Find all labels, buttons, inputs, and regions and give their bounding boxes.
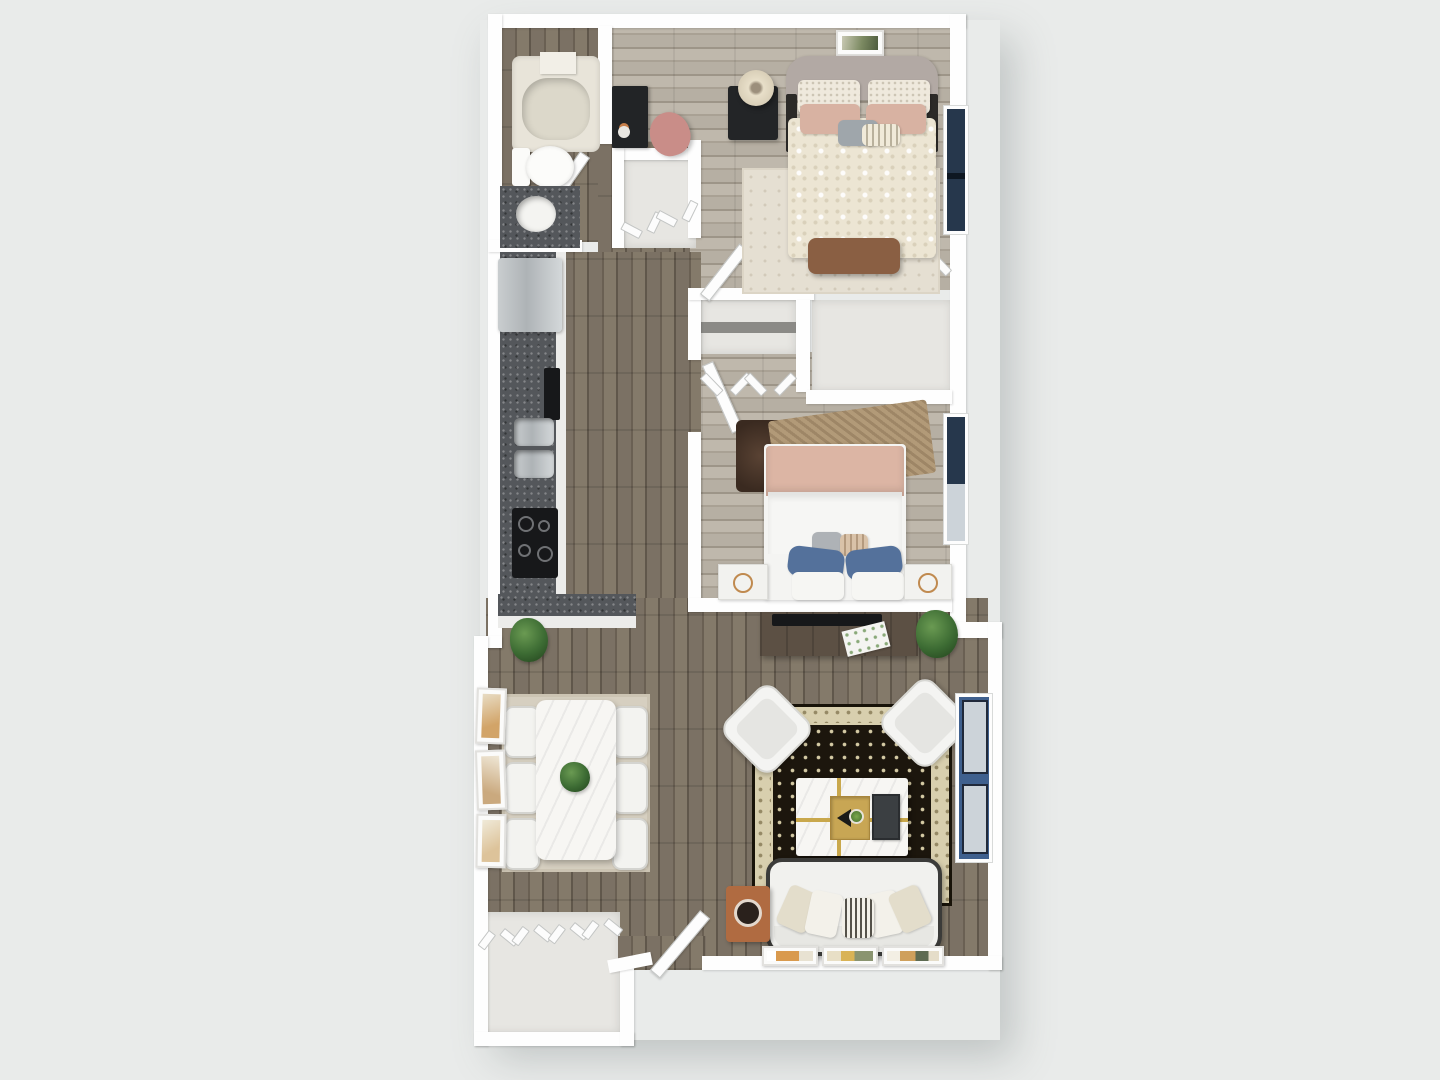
kitchen-sink bbox=[514, 418, 558, 480]
wall-closet-divider bbox=[796, 300, 810, 392]
desk-vase bbox=[618, 126, 630, 138]
gold-tray bbox=[830, 796, 870, 840]
wall-oven bbox=[544, 368, 560, 420]
second-bed-blanket bbox=[766, 446, 904, 496]
pillow-white-left bbox=[792, 572, 844, 600]
dining-chair bbox=[612, 818, 648, 870]
refrigerator bbox=[498, 258, 562, 332]
wall-spine-b bbox=[688, 292, 701, 360]
table-centerpiece-plant bbox=[560, 762, 590, 792]
coffee-table-book bbox=[872, 794, 900, 840]
dining-chair bbox=[504, 818, 540, 870]
pillow-white-right bbox=[852, 572, 904, 600]
floor-plan-canvas bbox=[0, 0, 1440, 1080]
wall-top bbox=[488, 14, 966, 28]
terracotta-side-table bbox=[726, 886, 770, 942]
foot-bench bbox=[808, 238, 900, 274]
wall-print bbox=[882, 946, 944, 966]
dining-corner-plant bbox=[510, 618, 548, 662]
shower-shelf bbox=[540, 52, 576, 74]
primary-closet-floor bbox=[812, 300, 952, 392]
primary-bedroom-window bbox=[944, 106, 968, 234]
hall-closet-shelf bbox=[701, 322, 796, 333]
leaning-art-frame bbox=[475, 749, 507, 810]
wall-nook-right bbox=[620, 964, 634, 1046]
dining-chair bbox=[612, 706, 648, 758]
entry-closet-bifold-right bbox=[549, 908, 623, 970]
wall-print bbox=[762, 946, 818, 966]
hallway-floor bbox=[560, 252, 701, 602]
desk bbox=[612, 86, 648, 148]
wall-nook-bottom bbox=[474, 1032, 634, 1046]
wall-art-primary bbox=[836, 30, 884, 56]
floor-plan bbox=[0, 0, 1440, 1080]
wall-bathroom-right bbox=[598, 26, 612, 144]
hall-closet-bifold-doors bbox=[704, 352, 792, 402]
wall-spine-c bbox=[688, 432, 701, 612]
pillow-accent-striped bbox=[862, 124, 900, 146]
sofa bbox=[766, 858, 942, 956]
entry-closet-bifold-left bbox=[479, 914, 553, 976]
bathtub-basin bbox=[522, 78, 590, 140]
nightstand-second-right bbox=[904, 564, 952, 600]
wall-print bbox=[822, 946, 878, 966]
dining-chair bbox=[504, 706, 540, 758]
second-bedroom-window bbox=[944, 414, 968, 544]
leaning-art-frame bbox=[476, 814, 507, 869]
table-lamp bbox=[738, 70, 774, 106]
wall-second-bedroom-top bbox=[806, 390, 952, 404]
leaning-art-frame bbox=[475, 687, 507, 744]
peninsula-counter bbox=[498, 594, 636, 618]
wall-second-bedroom-bottom bbox=[688, 598, 952, 612]
cooktop bbox=[512, 508, 558, 578]
tv bbox=[772, 614, 882, 626]
living-room-window bbox=[956, 694, 992, 862]
nightstand-second-left bbox=[718, 564, 768, 600]
dining-chair bbox=[504, 762, 540, 814]
toilet-bowl bbox=[526, 146, 574, 188]
living-plant bbox=[916, 610, 958, 658]
vanity-sink bbox=[516, 196, 556, 232]
dining-chair bbox=[612, 762, 648, 814]
